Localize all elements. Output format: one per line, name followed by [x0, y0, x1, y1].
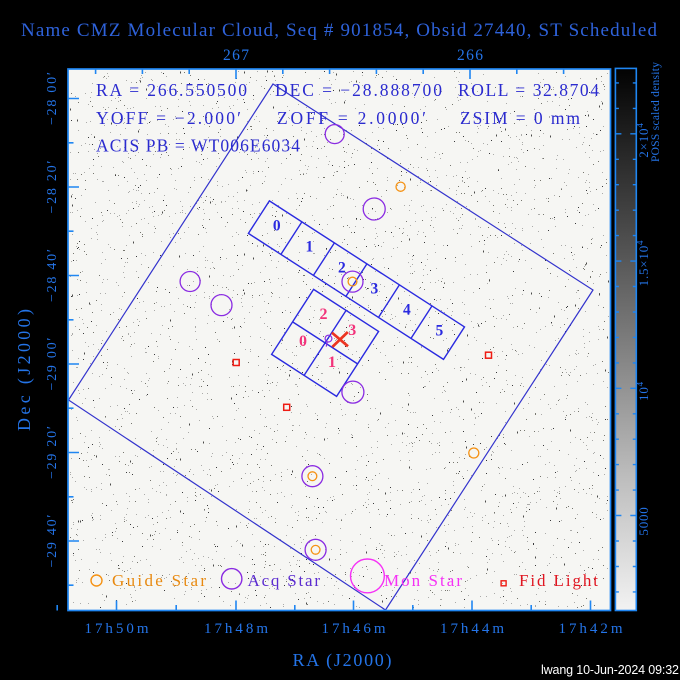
- svg-text:POSS scaled density: POSS scaled density: [650, 62, 662, 162]
- svg-text:2: 2: [320, 306, 328, 323]
- svg-text:0: 0: [273, 218, 281, 235]
- svg-text:17h44m: 17h44m: [440, 621, 504, 637]
- svg-text:1: 1: [306, 239, 314, 256]
- svg-text:ACIS PB = WT006E6034: ACIS PB = WT006E6034: [96, 136, 300, 156]
- svg-text:RA (J2000): RA (J2000): [293, 650, 392, 671]
- svg-text:3: 3: [348, 322, 356, 339]
- svg-text:5: 5: [436, 323, 444, 340]
- svg-text:Acq Star: Acq Star: [248, 571, 321, 590]
- svg-text:5000: 5000: [636, 506, 651, 535]
- svg-text:17h42m: 17h42m: [559, 621, 623, 637]
- svg-text:4: 4: [403, 302, 411, 319]
- svg-text:0: 0: [299, 333, 307, 350]
- svg-text:Guide Star: Guide Star: [112, 571, 206, 590]
- svg-text:Name CMZ Molecular Cloud, Seq: Name CMZ Molecular Cloud, Seq # 901854, …: [21, 20, 658, 41]
- svg-text:1.5×104: 1.5×104: [635, 240, 651, 287]
- svg-text:Mon Star: Mon Star: [384, 571, 462, 590]
- svg-text:RA = 266.550500: RA = 266.550500: [96, 80, 247, 100]
- svg-text:ROLL = 32.8704: ROLL = 32.8704: [458, 80, 599, 100]
- svg-text:267: 267: [223, 47, 249, 64]
- svg-text:266: 266: [457, 47, 483, 64]
- svg-text:ZOFF = 2.0000′: ZOFF = 2.0000′: [277, 108, 426, 128]
- svg-text:17h46m: 17h46m: [322, 621, 386, 637]
- svg-text:ZSIM = 0 mm: ZSIM = 0 mm: [460, 108, 580, 128]
- svg-text:1: 1: [328, 354, 336, 371]
- svg-text:17h48m: 17h48m: [204, 621, 268, 637]
- svg-text:DEC = −28.888700: DEC = −28.888700: [275, 80, 442, 100]
- svg-text:3: 3: [371, 281, 379, 298]
- svg-text:Dec (J2000): Dec (J2000): [14, 309, 35, 431]
- svg-text:Fid Light: Fid Light: [519, 571, 598, 590]
- svg-text:YOFF = −2.000′: YOFF = −2.000′: [96, 108, 241, 128]
- svg-text:17h50m: 17h50m: [85, 621, 149, 637]
- svg-text:lwang 10-Jun-2024 09:32: lwang 10-Jun-2024 09:32: [541, 663, 679, 677]
